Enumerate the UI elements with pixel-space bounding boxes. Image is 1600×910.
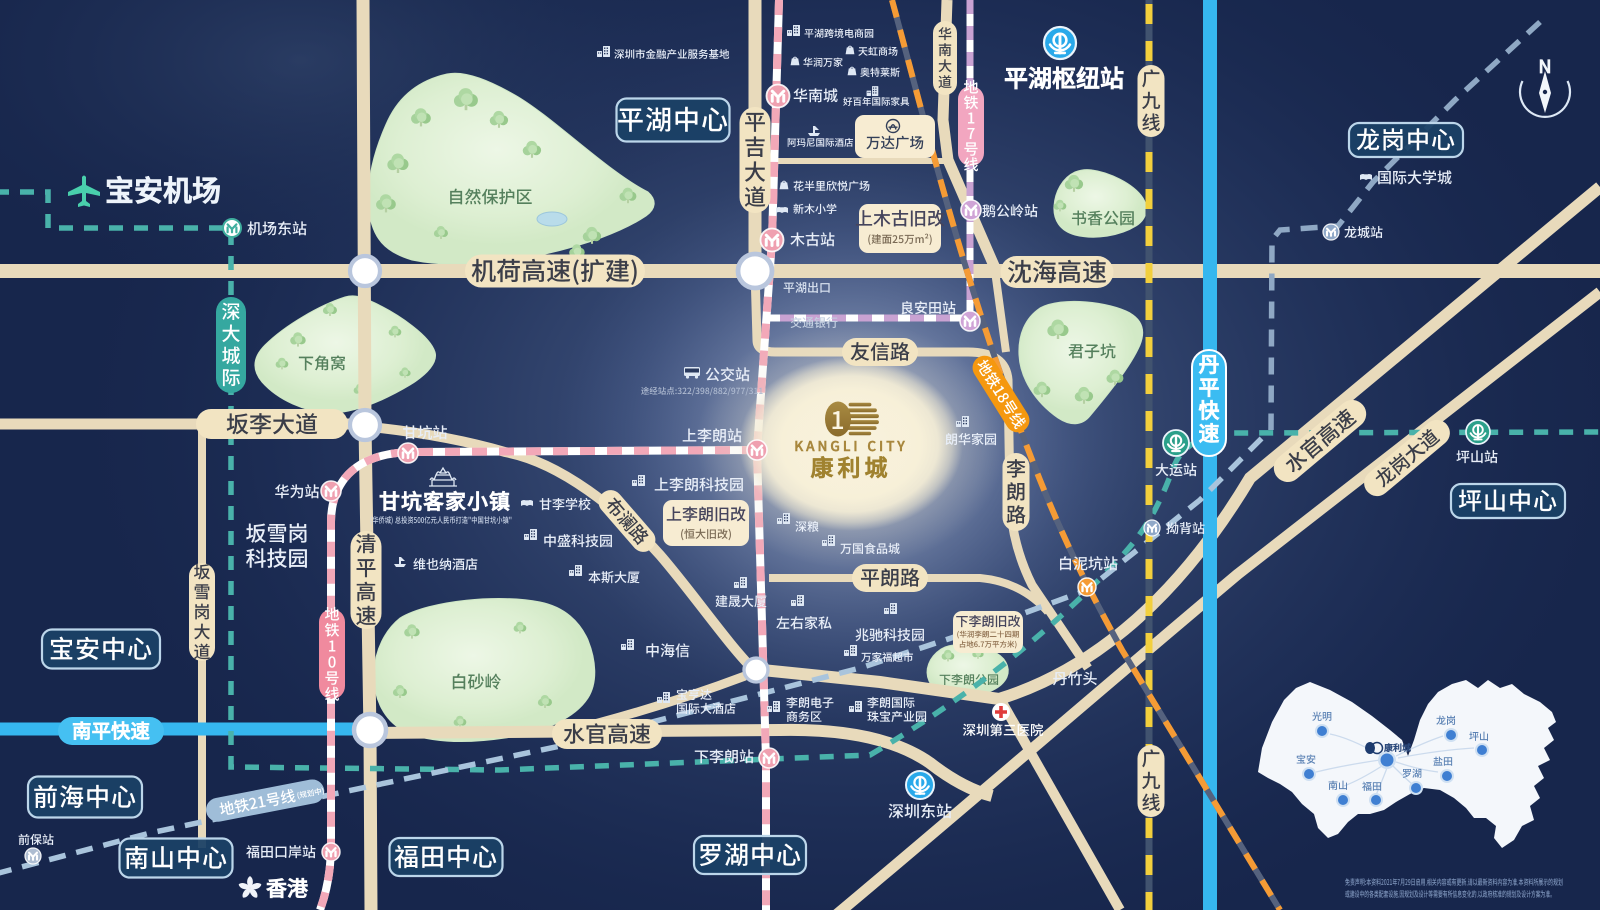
svg-text:深粮: 深粮 — [795, 518, 819, 535]
svg-text:华润万家: 华润万家 — [803, 54, 843, 69]
svg-text:坪山站: 坪山站 — [1456, 447, 1498, 467]
svg-text:宝安: 宝安 — [1296, 751, 1316, 766]
svg-text:深大城际: 深大城际 — [221, 298, 240, 391]
svg-text:丹平快速: 丹平快速 — [1198, 349, 1221, 448]
svg-text:N: N — [1538, 53, 1551, 79]
svg-text:前海中心: 前海中心 — [33, 778, 137, 814]
svg-text:友信路: 友信路 — [850, 336, 910, 365]
svg-text:国际大酒店: 国际大酒店 — [676, 700, 736, 717]
svg-text:良安田站: 良安田站 — [900, 298, 956, 318]
svg-text:坪山: 坪山 — [1469, 728, 1489, 743]
svg-text:康利城: 康利城 — [1383, 741, 1411, 754]
svg-text:龙城站: 龙城站 — [1344, 222, 1383, 241]
svg-text:维也纳酒店: 维也纳酒店 — [413, 554, 478, 573]
svg-text:(建面25万m²): (建面25万m²) — [867, 232, 932, 247]
svg-text:中海信: 中海信 — [645, 640, 690, 661]
svg-text:鹅公岭站: 鹅公岭站 — [982, 201, 1038, 221]
svg-text:水官高速: 水官高速 — [563, 717, 651, 749]
svg-text:占地6.7万平方米): 占地6.7万平方米) — [959, 639, 1017, 650]
svg-text:中盛科技园: 中盛科技园 — [543, 531, 613, 551]
svg-text:沈海高速: 沈海高速 — [1007, 253, 1107, 289]
svg-text:拗背站: 拗背站 — [1166, 518, 1205, 537]
svg-text:自然保护区: 自然保护区 — [448, 183, 533, 208]
svg-text:深圳东站: 深圳东站 — [888, 798, 952, 822]
svg-text:上李朗科技园: 上李朗科技园 — [654, 474, 744, 495]
svg-text:宝安中心: 宝安中心 — [49, 630, 153, 666]
svg-text:1: 1 — [830, 401, 844, 437]
svg-text:奥特莱斯: 奥特莱斯 — [860, 64, 900, 79]
svg-text:朗华家园: 朗华家园 — [945, 429, 997, 448]
svg-text:好百年国际家具: 好百年国际家具 — [843, 94, 910, 108]
svg-text:(恒大旧改): (恒大旧改) — [680, 526, 732, 542]
svg-text:左右家私: 左右家私 — [776, 613, 832, 633]
svg-text:平吉大道: 平吉大道 — [744, 105, 766, 212]
svg-text:建晟大厦: 建晟大厦 — [715, 591, 767, 610]
svg-text:龙岗: 龙岗 — [1436, 712, 1456, 727]
svg-text:上木古旧改: 上木古旧改 — [855, 205, 945, 231]
svg-text:康利城: 康利城 — [811, 449, 892, 483]
svg-text:万家福超市: 万家福超市 — [861, 650, 914, 665]
svg-text:书香公园: 书香公园 — [1071, 205, 1135, 229]
svg-text:广九线: 广九线 — [1141, 65, 1160, 136]
svg-text:前保站: 前保站 — [18, 831, 54, 848]
svg-text:白砂岭: 白砂岭 — [451, 668, 502, 693]
svg-text:白泥坑站: 白泥坑站 — [1058, 553, 1118, 574]
svg-text:福田中心: 福田中心 — [394, 838, 498, 874]
svg-text:甘坑客家小镇: 甘坑客家小镇 — [379, 486, 511, 516]
svg-text:花半里欣悦广场: 花半里欣悦广场 — [793, 178, 870, 194]
svg-text:万国食品城: 万国食品城 — [840, 540, 900, 557]
svg-text:华为站: 华为站 — [274, 481, 319, 502]
svg-text:商务区: 商务区 — [786, 708, 822, 725]
svg-text:公交站: 公交站 — [705, 364, 750, 385]
svg-text:平湖枢纽站: 平湖枢纽站 — [1004, 59, 1124, 94]
svg-text:深圳市金融产业服务基地: 深圳市金融产业服务基地 — [614, 47, 730, 62]
svg-text:木古站: 木古站 — [790, 229, 835, 250]
svg-text:南平快速: 南平快速 — [72, 715, 151, 744]
svg-text:兆驰科技园: 兆驰科技园 — [855, 625, 925, 645]
svg-text:或建设中的各类配套设施,因规划及设计等需要有所信息变化的,以: 或建设中的各类配套设施,因规划及设计等需要有所信息变化的,以政府核准的规划及设计… — [1345, 889, 1555, 900]
svg-text:大运站: 大运站 — [1155, 460, 1197, 480]
svg-text:下角窝: 下角窝 — [298, 350, 346, 374]
svg-text:上李朗站: 上李朗站 — [682, 425, 742, 446]
svg-text:福田: 福田 — [1362, 778, 1382, 793]
svg-text:下李朗站: 下李朗站 — [694, 746, 754, 767]
svg-text:盐田: 盐田 — [1433, 753, 1453, 768]
svg-text:坪山中心: 坪山中心 — [1458, 482, 1558, 517]
svg-text:龙岗中心: 龙岗中心 — [1356, 121, 1456, 156]
svg-text:交通银行: 交通银行 — [790, 314, 838, 331]
svg-text:(华侨城) 总投资500亿元人民币打造"中国甘坑小镇": (华侨城) 总投资500亿元人民币打造"中国甘坑小镇" — [370, 515, 512, 526]
svg-text:下李朗公园: 下李朗公园 — [939, 671, 999, 688]
svg-text:罗湖中心: 罗湖中心 — [698, 836, 802, 872]
svg-text:机场东站: 机场东站 — [247, 218, 307, 239]
svg-text:下李朗旧改: 下李朗旧改 — [955, 611, 1020, 630]
svg-text:免责声明:本资料2021年7月29日启用,相关内容或有更新,: 免责声明:本资料2021年7月29日启用,相关内容或有更新,请以最新资料内容为准… — [1345, 877, 1563, 888]
svg-text:新木小学: 新木小学 — [793, 201, 837, 217]
svg-text:科技园: 科技园 — [246, 543, 309, 573]
svg-text:阿玛尼国际酒店: 阿玛尼国际酒店 — [787, 135, 854, 149]
svg-text:宝安机场: 宝安机场 — [105, 168, 221, 210]
svg-text:广九线: 广九线 — [1141, 745, 1160, 816]
svg-text:香港: 香港 — [265, 873, 309, 903]
svg-text:华南大道: 华南大道 — [938, 24, 952, 92]
svg-text:深圳第三医院: 深圳第三医院 — [963, 719, 1044, 739]
svg-text:坂李大道: 坂李大道 — [226, 405, 318, 439]
svg-text:南山: 南山 — [1328, 777, 1348, 792]
svg-text:福田口岸站: 福田口岸站 — [246, 842, 316, 862]
svg-text:君子坑: 君子坑 — [1068, 338, 1116, 362]
svg-text:罗湖: 罗湖 — [1402, 765, 1422, 780]
svg-text:南山中心: 南山中心 — [124, 839, 228, 875]
svg-text:清平高速: 清平高速 — [356, 528, 377, 630]
svg-text:万达广场: 万达广场 — [866, 132, 924, 153]
svg-text:机荷高速(扩建): 机荷高速(扩建) — [471, 252, 639, 288]
svg-text:珠宝产业园: 珠宝产业园 — [867, 708, 927, 725]
svg-text:途经站点:322/398/882/977/311: 途经站点:322/398/882/977/311 — [641, 385, 764, 397]
svg-text:平湖中心: 平湖中心 — [617, 99, 729, 138]
svg-text:平湖出口: 平湖出口 — [783, 279, 831, 296]
svg-text:上李朗旧改: 上李朗旧改 — [666, 501, 746, 525]
svg-text:平湖跨境电商园: 平湖跨境电商园 — [804, 25, 874, 40]
svg-text:国际大学城: 国际大学城 — [1377, 167, 1452, 188]
svg-text:丹竹头: 丹竹头 — [1052, 668, 1097, 689]
svg-text:平朗路: 平朗路 — [860, 562, 920, 591]
svg-text:本斯大厦: 本斯大厦 — [588, 567, 640, 586]
svg-text:李朗路: 李朗路 — [1006, 453, 1026, 528]
svg-text:坂雪岗大道: 坂雪岗大道 — [194, 558, 211, 663]
svg-text:甘坑站: 甘坑站 — [402, 422, 447, 443]
svg-text:天虹商场: 天虹商场 — [858, 43, 898, 58]
svg-text:光明: 光明 — [1312, 708, 1332, 723]
svg-text:甘李学校: 甘李学校 — [539, 494, 591, 513]
svg-text:华南城: 华南城 — [793, 85, 838, 106]
